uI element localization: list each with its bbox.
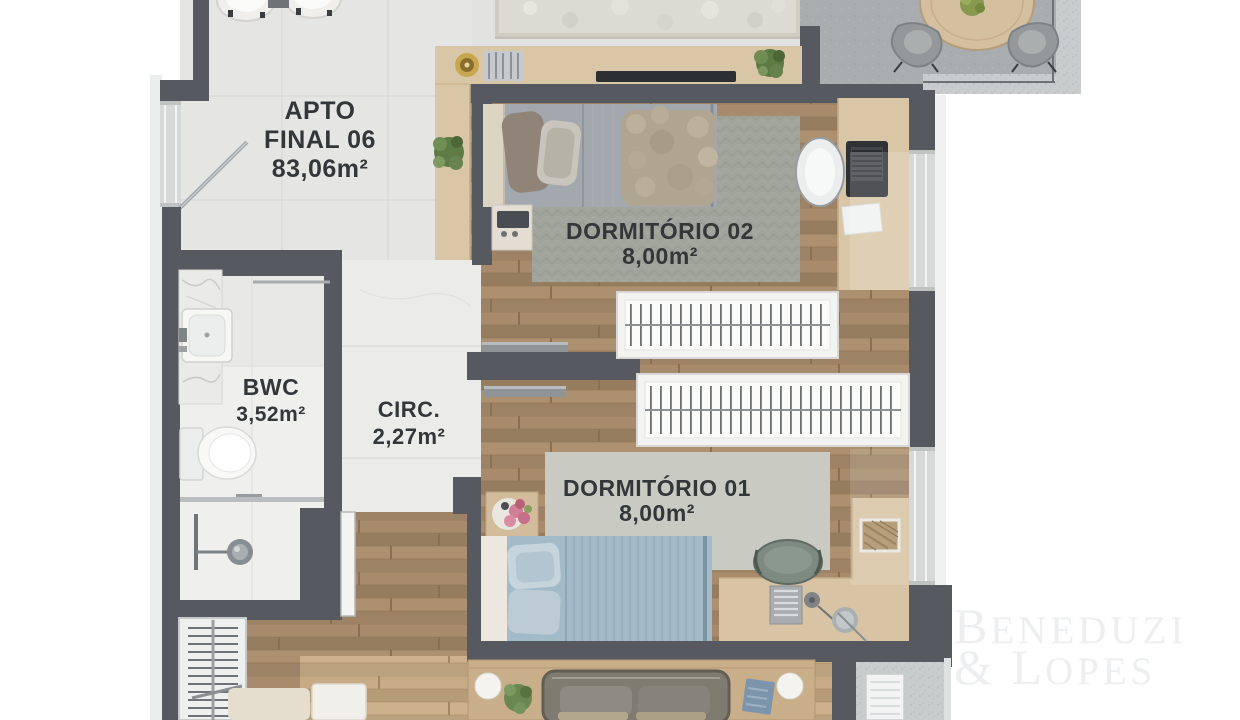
svg-text:DORMITÓRIO 02: DORMITÓRIO 02 <box>566 217 754 244</box>
svg-text:CIRC.: CIRC. <box>378 397 440 422</box>
svg-text:8,00m²: 8,00m² <box>619 500 695 526</box>
svg-text:8,00m²: 8,00m² <box>622 243 698 269</box>
svg-text:APTO: APTO <box>285 97 356 125</box>
svg-text:FINAL 06: FINAL 06 <box>264 126 376 154</box>
svg-text:DORMITÓRIO 01: DORMITÓRIO 01 <box>563 474 751 501</box>
svg-text:83,06m²: 83,06m² <box>272 155 369 183</box>
svg-text:2,27m²: 2,27m² <box>373 424 446 449</box>
svg-text:BWC: BWC <box>243 374 299 400</box>
svg-text:3,52m²: 3,52m² <box>236 403 306 426</box>
